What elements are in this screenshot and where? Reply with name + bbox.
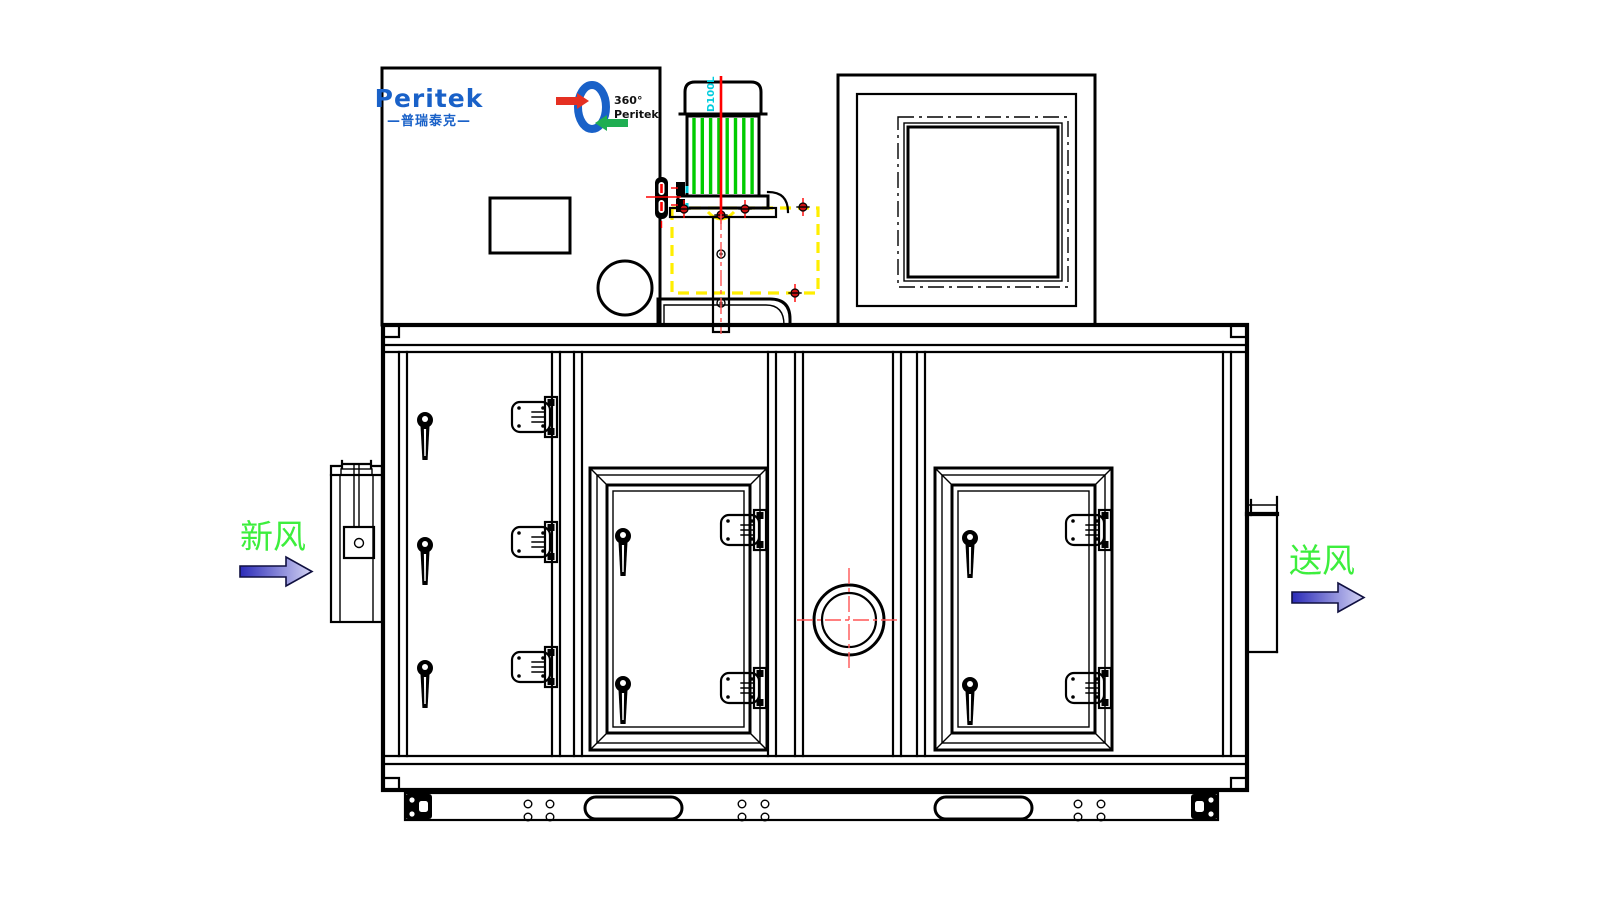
rotor-degrees-text: 360° [614, 94, 642, 107]
motor-body [687, 116, 759, 196]
door-latch [512, 647, 557, 687]
motor-model-label: D100L [706, 76, 717, 112]
filter-mesh [908, 127, 1058, 277]
access-doors [590, 468, 1112, 750]
rotor-brand-text: Peritek [614, 108, 659, 121]
outlet-duct [1247, 497, 1277, 652]
motor-assembly: D100L [646, 76, 818, 334]
forklift-slot [585, 797, 682, 819]
door-latch [721, 510, 766, 550]
door-latch [512, 397, 557, 437]
sight-glass [797, 568, 901, 672]
brand-panel: Peritek —普瑞泰克— 360° Peritek [375, 68, 660, 325]
dehumidifier-front-view: Peritek —普瑞泰克— 360° Peritek [0, 0, 1613, 897]
bolt-marker [789, 284, 801, 302]
supply-air-arrow-icon [1292, 583, 1364, 612]
filter-panel [838, 75, 1095, 325]
peritek-logo: Peritek —普瑞泰克— [375, 84, 484, 129]
bolt-hole [1097, 800, 1105, 808]
panel-handle [417, 537, 433, 585]
cabinet-body [383, 325, 1247, 790]
panel-handle [962, 677, 978, 725]
control-box [490, 198, 570, 253]
access-door [590, 468, 767, 750]
panel-handle [962, 530, 978, 578]
bolt-hole [761, 800, 769, 808]
panel-handle [615, 528, 631, 576]
bolt-hole [524, 800, 532, 808]
panel-handle [417, 412, 433, 460]
hidden-rotor-outline [672, 208, 818, 293]
door-latch [1066, 510, 1111, 550]
panel-handle [417, 660, 433, 708]
fresh-air-arrow-icon [240, 557, 312, 586]
fresh-air-label: 新风 [240, 517, 306, 556]
bolt-hole [738, 800, 746, 808]
cable-hole [598, 261, 652, 315]
divider-c [893, 352, 925, 756]
divider-b [768, 352, 803, 756]
corner-steps [383, 325, 1247, 790]
damper-actuator [344, 527, 374, 558]
fresh-air-annotation: 新风 [240, 517, 312, 586]
access-door [935, 468, 1112, 750]
rotor-logo: 360° Peritek [556, 85, 659, 131]
bolt-marker [797, 198, 809, 216]
base-bracket-right [1191, 794, 1218, 819]
inlet-damper [331, 461, 382, 622]
flange-bolt-markers [678, 198, 809, 302]
base-bracket-left [405, 794, 432, 819]
cad-drawing-canvas: Peritek —普瑞泰克— 360° Peritek [0, 0, 1613, 897]
door-latch [512, 522, 557, 562]
fastener-symbol [646, 177, 681, 228]
panel-handle [615, 676, 631, 724]
door-latches [512, 397, 1111, 708]
supply-air-annotation: 送风 [1289, 541, 1364, 612]
bolt-marker [739, 200, 751, 218]
bolt-hole [1074, 800, 1082, 808]
brand-logo-text: Peritek [375, 84, 484, 113]
motor-cooling-fins [694, 118, 752, 194]
forklift-slot [935, 797, 1032, 819]
door-latch [1066, 668, 1111, 708]
brand-logo-subtext: —普瑞泰克— [387, 113, 471, 129]
supply-air-label: 送风 [1289, 541, 1355, 580]
base-frame [405, 793, 1218, 821]
bolt-hole [546, 800, 554, 808]
door-latch [721, 668, 766, 708]
